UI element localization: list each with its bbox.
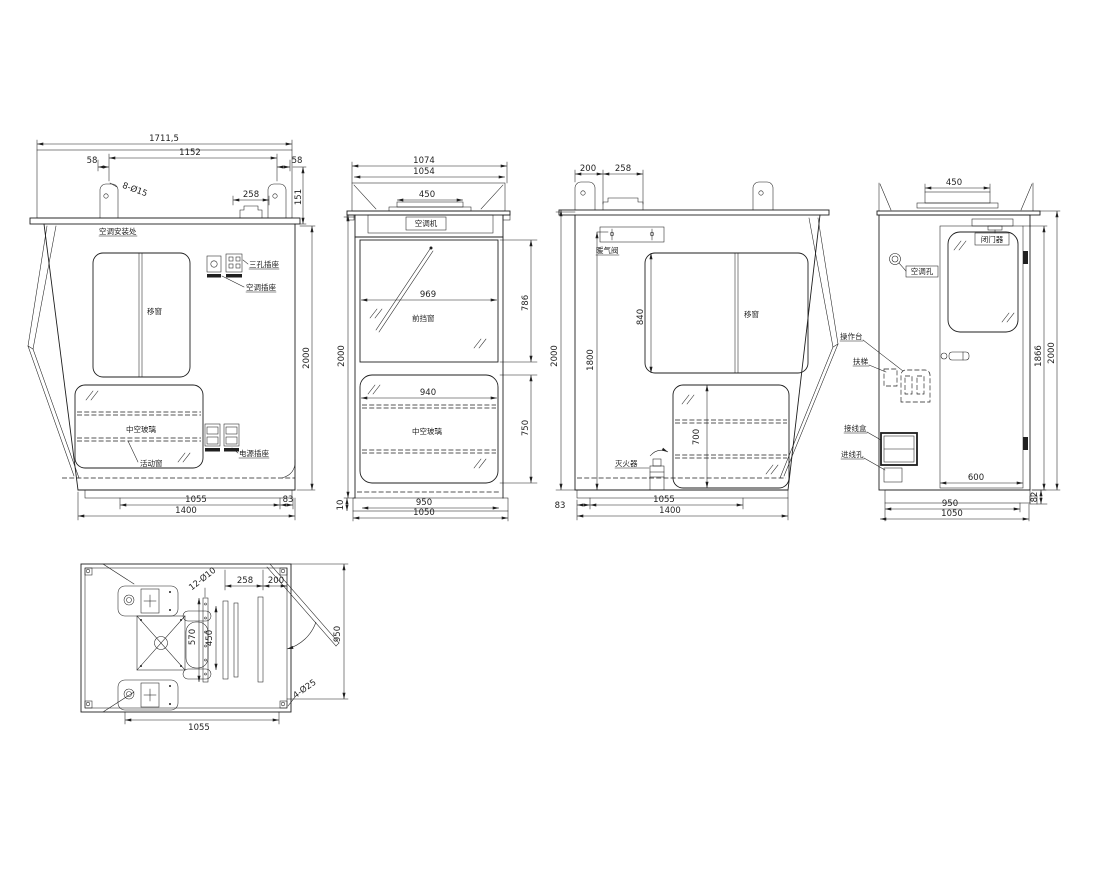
view-plan: 570 450 12-Ø10 258 200 950 4-Ø25 1055 xyxy=(81,564,348,733)
wiper-pivot xyxy=(430,247,433,250)
dim-rear-base: 1400 xyxy=(175,506,197,516)
dim-plan-a: 258 xyxy=(237,576,253,586)
dim-door-ac: 450 xyxy=(946,178,962,188)
socket-icons-lower: 电源插座 xyxy=(205,424,269,458)
hinge-lower xyxy=(1023,437,1028,450)
dim-left-b: 258 xyxy=(615,164,631,174)
ac-hole: 空调孔 xyxy=(890,254,939,278)
door-base: 600 82 950 1050 xyxy=(880,473,1047,521)
label-ladder: 扶梯 xyxy=(853,356,868,366)
windshield: 969 前挡窗 xyxy=(361,247,497,349)
dim-left-edge: 83 xyxy=(555,501,566,511)
dim-rear-span: 1152 xyxy=(179,148,201,158)
dim-rear-height: 2000 xyxy=(302,347,312,369)
dim-front-plate: 10 xyxy=(336,500,346,511)
hinge-upper xyxy=(1023,251,1028,264)
rear-sliding-window: 移窗 xyxy=(93,253,190,377)
label-ac-mount: 空调安装处 xyxy=(99,226,137,236)
dim-left-height: 2000 xyxy=(550,345,560,367)
dim-door-step: 82 xyxy=(1030,492,1040,503)
dim-door-base: 1050 xyxy=(941,509,963,519)
view-rear-elevation: 1711,5 1152 58 58 8-Ø15 258 151 2000 空调安… xyxy=(28,134,315,520)
dim-door-inner: 950 xyxy=(942,499,958,509)
front-lower-window: 940 中空玻璃 750 xyxy=(360,375,537,483)
dim-front-height: 2000 xyxy=(337,345,347,367)
front-base-dimensions: 950 1050 10 xyxy=(336,498,508,521)
dim-plan-rail-holes: 12-Ø10 xyxy=(187,565,219,593)
dim-plan-width: 1055 xyxy=(188,723,210,733)
rear-base-dimensions: 1055 83 1400 xyxy=(78,492,295,520)
dim-rear-edge: 83 xyxy=(283,495,294,505)
front-roof: 1074 1054 450 xyxy=(347,156,510,220)
left-body xyxy=(575,215,838,498)
label-extinguisher: 灭火器 xyxy=(615,459,638,468)
dim-front-lw: 940 xyxy=(420,388,436,398)
dim-door-height: 2000 xyxy=(1047,342,1057,364)
dim-plan-r2: 450 xyxy=(205,630,215,646)
view-door-elevation: 450 闭门器 空调孔 操作台 扶梯 接线盒 进线孔 xyxy=(840,178,1060,521)
dim-front-wsh: 786 xyxy=(521,295,531,311)
plan-bottom-dimensions: 1055 xyxy=(125,712,279,733)
plan-console-bottom xyxy=(118,680,178,710)
label-windshield: 前挡窗 xyxy=(412,313,435,323)
dim-rear-overall: 1711,5 xyxy=(149,134,179,144)
rear-lower-window: 中空玻璃 活动窗 xyxy=(75,385,203,468)
view-front-elevation: 1074 1054 450 空调机 969 前挡窗 786 200 xyxy=(336,156,537,521)
dim-front-lh: 750 xyxy=(521,420,531,436)
left-sliding-window: 移窗 840 xyxy=(636,253,808,373)
dim-rear-duct: 258 xyxy=(243,190,259,200)
dim-left-inner: 1800 xyxy=(586,349,596,371)
label-front-glass: 中空玻璃 xyxy=(412,426,442,436)
label-console: 操作台 xyxy=(840,331,863,341)
dim-front-ac: 450 xyxy=(419,190,435,200)
hidden-console xyxy=(884,369,930,402)
door-handle xyxy=(941,353,947,359)
rear-roof-assembly xyxy=(30,150,300,224)
dim-rear-floor: 1055 xyxy=(185,495,207,505)
dim-left-a: 200 xyxy=(580,164,596,174)
cab-engineering-drawing: 1711,5 1152 58 58 8-Ø15 258 151 2000 空调安… xyxy=(0,0,1100,880)
label-door-closer: 闭门器 xyxy=(981,235,1004,244)
fire-extinguisher: 灭火器 xyxy=(615,450,668,490)
label-left-window: 移窗 xyxy=(744,309,759,319)
armrest-bottom xyxy=(183,669,211,679)
left-lower-window: 700 xyxy=(673,385,789,488)
view-left-elevation: 200 258 2000 1800 暖气阀 移窗 840 xyxy=(550,164,838,520)
label-valve: 暖气阀 xyxy=(596,245,619,255)
label-ac-unit: 空调机 xyxy=(415,218,438,228)
valve-box: 暖气阀 xyxy=(596,227,664,255)
dim-door-h: 1866 xyxy=(1034,345,1044,367)
inlet-hole xyxy=(884,468,902,482)
dim-rear-roof: 151 xyxy=(294,189,304,205)
label-inlet: 进线孔 xyxy=(841,449,864,459)
label-vent-window: 活动窗 xyxy=(140,458,163,468)
label-rear-glass: 中空玻璃 xyxy=(126,424,156,434)
dim-left-base: 1400 xyxy=(659,506,681,516)
dim-rear-holes: 8-Ø15 xyxy=(121,180,149,199)
label-power-socket: 电源插座 xyxy=(239,448,269,458)
label-socket-ac: 空调插座 xyxy=(246,282,276,292)
junction-box xyxy=(881,433,917,482)
front-body xyxy=(353,215,508,511)
dim-rear-left: 58 xyxy=(87,156,98,166)
plan-seat xyxy=(137,611,211,679)
door-roof: 450 xyxy=(877,178,1040,215)
left-roof: 200 258 xyxy=(559,164,829,215)
dim-front-inner: 950 xyxy=(416,498,432,508)
dim-plan-r1: 570 xyxy=(188,629,198,645)
armrest-top xyxy=(183,611,211,621)
dim-door-width: 600 xyxy=(968,473,984,483)
plan-right-dimensions: 950 4-Ø25 xyxy=(287,564,348,706)
drawing-canvas: 1711,5 1152 58 58 8-Ø15 258 151 2000 空调安… xyxy=(0,0,1100,880)
front-side-dimensions: 786 2000 xyxy=(337,215,537,498)
dim-front-w2: 1054 xyxy=(413,167,435,177)
rear-dimensions: 1711,5 1152 58 58 8-Ø15 258 151 2000 xyxy=(37,134,315,490)
corner-bracket xyxy=(282,460,295,478)
dim-front-base: 1050 xyxy=(413,508,435,518)
label-ac-hole: 空调孔 xyxy=(911,266,934,276)
dim-front-wsw: 969 xyxy=(420,290,436,300)
dim-left-win: 840 xyxy=(636,309,646,325)
dim-plan-depth: 950 xyxy=(333,626,343,642)
label-junction-box: 接线盒 xyxy=(844,423,867,433)
ac-unit-recess: 空调机 xyxy=(368,215,493,233)
label-rear-window: 移窗 xyxy=(147,306,162,316)
door-height-dimensions: 1866 2000 xyxy=(1023,211,1060,490)
label-socket-three: 三孔插座 xyxy=(249,259,279,269)
dim-front-w1: 1074 xyxy=(413,156,435,166)
dim-left-low: 700 xyxy=(692,429,702,445)
left-base-dimensions: 83 1055 1400 xyxy=(555,495,788,520)
dim-rear-right: 58 xyxy=(292,156,303,166)
socket-icons-upper: 三孔插座 空调插座 xyxy=(207,254,279,292)
dim-left-floor: 1055 xyxy=(653,495,675,505)
plan-console-top xyxy=(118,586,178,616)
